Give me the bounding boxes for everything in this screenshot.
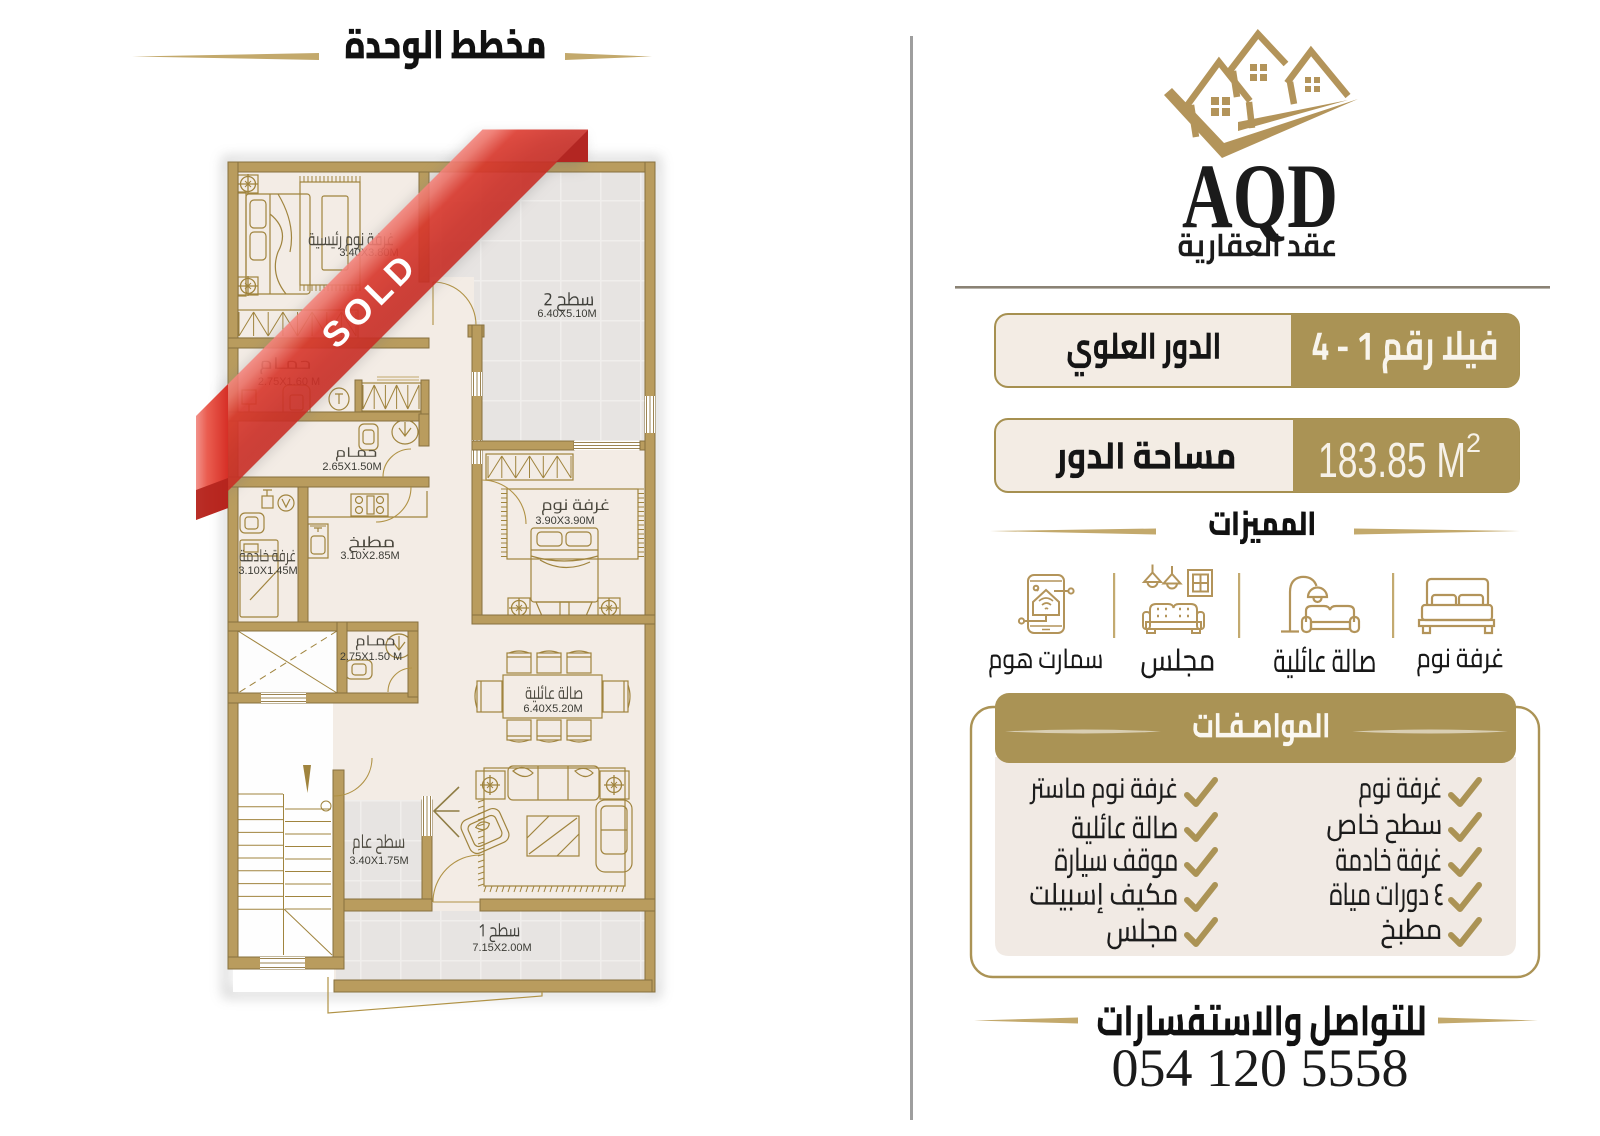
svg-text:3.40X1.75M: 3.40X1.75M xyxy=(349,855,408,867)
svg-text:2: 2 xyxy=(1466,428,1481,458)
svg-text:AQD: AQD xyxy=(1182,145,1338,247)
svg-text:6.40X5.20M: 6.40X5.20M xyxy=(523,703,582,715)
svg-text:183.85 M: 183.85 M xyxy=(1318,434,1466,488)
svg-text:3.90X3.90M: 3.90X3.90M xyxy=(535,515,594,527)
svg-text:3.10X2.85M: 3.10X2.85M xyxy=(340,550,399,562)
svg-text:6.40X5.10M: 6.40X5.10M xyxy=(537,308,596,320)
svg-text:2.65X1.50M: 2.65X1.50M xyxy=(322,461,381,473)
svg-text:054 120 5558: 054 120 5558 xyxy=(1112,1038,1409,1098)
svg-text:2.75X1.50 M: 2.75X1.50 M xyxy=(340,651,402,663)
svg-text:3.10X1.45M: 3.10X1.45M xyxy=(238,565,297,577)
svg-text:7.15X2.00M: 7.15X2.00M xyxy=(472,942,531,954)
